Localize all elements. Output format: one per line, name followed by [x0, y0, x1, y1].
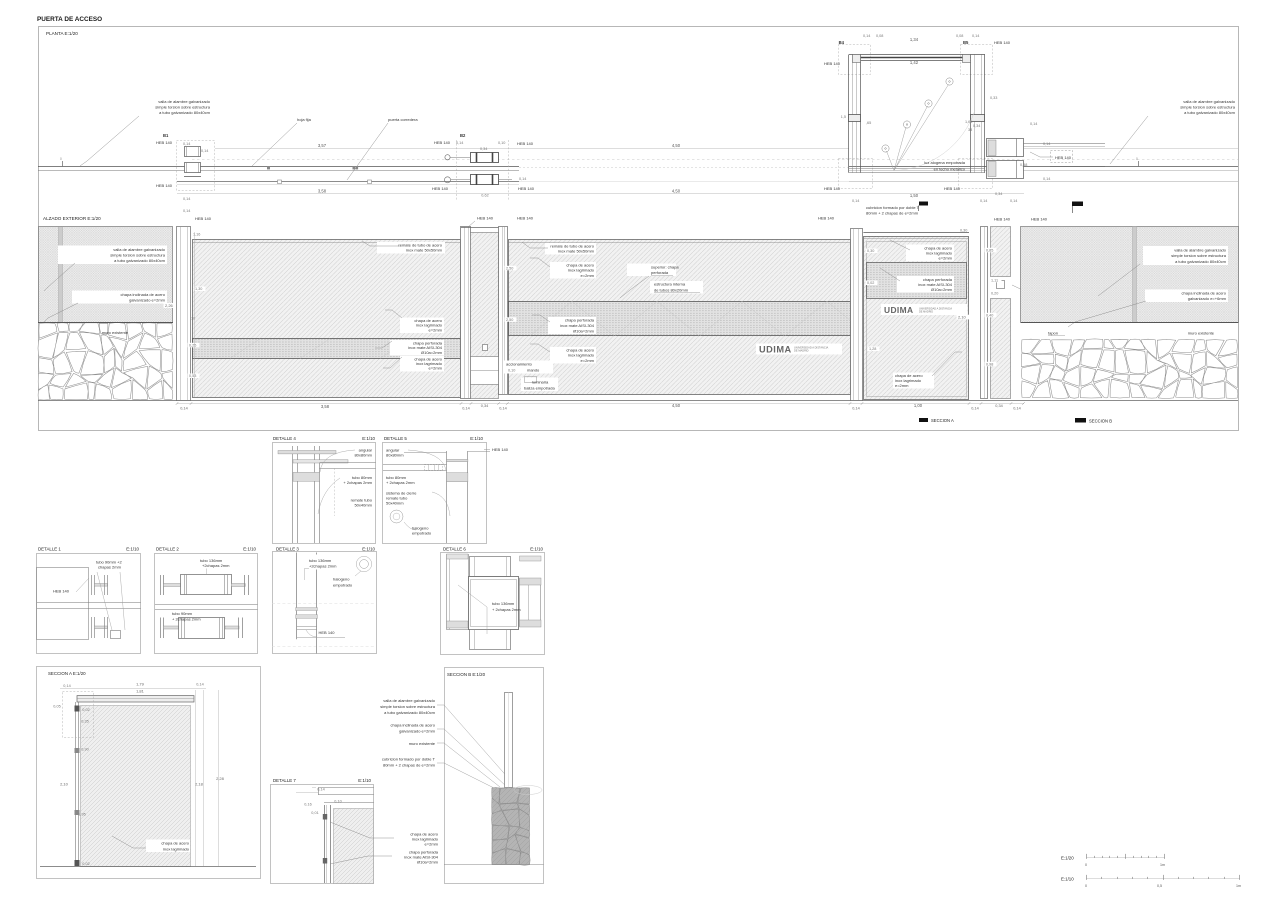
svg-text:B5: B5: [963, 40, 969, 45]
svg-text:0,40: 0,40: [986, 314, 993, 318]
svg-text:superior: chapa: superior: chapa: [651, 264, 679, 269]
svg-text:accionamiento: accionamiento: [506, 362, 533, 367]
svg-text:mando: mando: [527, 368, 540, 373]
svg-text:0,53: 0,53: [189, 374, 196, 378]
svg-text:80mm + 2 chapas de e=2mm: 80mm + 2 chapas de e=2mm: [383, 763, 436, 768]
svg-text:UDIMA: UDIMA: [884, 305, 913, 315]
svg-text:0,02: 0,02: [82, 708, 89, 712]
svg-text:HEB 140: HEB 140: [517, 141, 534, 146]
svg-text:B1: B1: [163, 133, 169, 138]
svg-text:4,50: 4,50: [672, 403, 681, 408]
svg-text:HEB 140: HEB 140: [517, 216, 534, 221]
svg-text:HEB 140: HEB 140: [994, 217, 1011, 222]
svg-text:1m: 1m: [1160, 863, 1165, 867]
svg-text:0,14: 0,14: [1043, 142, 1050, 146]
svg-text:HEB 140: HEB 140: [432, 186, 449, 191]
svg-text:1m: 1m: [1236, 884, 1241, 888]
svg-text:HEB 140: HEB 140: [477, 216, 494, 221]
svg-text:1,79: 1,79: [136, 682, 145, 687]
svg-text:0,14: 0,14: [1043, 177, 1050, 181]
svg-text:0,14: 0,14: [196, 683, 203, 687]
svg-text:ALZADO EXTERIOR E:1/20: ALZADO EXTERIOR E:1/20: [43, 216, 101, 221]
svg-text:HEB 140: HEB 140: [518, 186, 535, 191]
svg-text:tubo 136mm: tubo 136mm: [492, 601, 515, 606]
svg-text:a tubo galvanizado 80x40cm: a tubo galvanizado 80x40cm: [1184, 110, 1236, 115]
svg-text:UDIMA: UDIMA: [759, 345, 792, 355]
svg-text:SECCION A: SECCION A: [931, 418, 954, 423]
svg-text:1,5: 1,5: [841, 115, 846, 119]
svg-text:0: 0: [60, 157, 62, 161]
svg-text:0,10: 0,10: [508, 369, 515, 373]
svg-text:0,14: 0,14: [499, 407, 506, 411]
svg-text:38: 38: [968, 128, 972, 132]
svg-text:0,62: 0,62: [481, 194, 488, 198]
svg-text:HEB 140: HEB 140: [53, 589, 70, 594]
svg-text:estructura interna: estructura interna: [654, 282, 686, 287]
svg-text:empotrado: empotrado: [333, 583, 353, 588]
svg-text:valla de alambre galvanizado: valla de alambre galvanizado: [158, 99, 211, 104]
svg-text:0: 0: [1136, 157, 1138, 161]
svg-text:80x80mm: 80x80mm: [354, 453, 372, 458]
svg-text:muro existente: muro existente: [102, 330, 129, 335]
svg-text:0,14: 0,14: [456, 141, 463, 145]
svg-text:simple torsion sobre estructur: simple torsion sobre estructura: [155, 105, 210, 110]
svg-text:DETALLE 6: DETALLE 6: [443, 547, 466, 552]
svg-text:E:1/10: E:1/10: [362, 436, 375, 441]
svg-text:0,20: 0,20: [991, 292, 998, 296]
svg-text:+ 2chapas 2mm: + 2chapas 2mm: [343, 480, 372, 485]
svg-text:2,10: 2,10: [958, 314, 967, 319]
svg-text:0,58: 0,58: [1020, 163, 1027, 167]
svg-text:0,14: 0,14: [980, 199, 987, 203]
svg-text:chapa inclinada de acero: chapa inclinada de acero: [121, 292, 166, 297]
svg-text:0,34: 0,34: [481, 404, 488, 408]
svg-text:cubricion formado por doble T: cubricion formado por doble T: [866, 205, 920, 210]
svg-text:en techo metalico: en techo metalico: [934, 167, 966, 172]
svg-text:HEB 140: HEB 140: [1055, 155, 1072, 160]
svg-text:perforada: perforada: [651, 270, 669, 275]
svg-text:valla de alambre galvanizado: valla de alambre galvanizado: [113, 247, 166, 252]
svg-text:valla de alambre galvanizado: valla de alambre galvanizado: [1183, 99, 1236, 104]
svg-text:2,10: 2,10: [60, 782, 69, 787]
svg-text:0,08: 0,08: [876, 34, 883, 38]
svg-text:0,30: 0,30: [960, 229, 967, 233]
svg-text:e=2mm: e=2mm: [581, 273, 595, 278]
svg-text:1,00: 1,00: [914, 403, 923, 408]
svg-text:0,14: 0,14: [1013, 407, 1020, 411]
svg-text:0,25: 0,25: [189, 343, 196, 347]
svg-text:inox mate 50x50mm: inox mate 50x50mm: [406, 248, 443, 253]
svg-text:simple torsion sobre estructur: simple torsion sobre estructura: [380, 704, 435, 709]
svg-text:1,34: 1,34: [910, 37, 919, 42]
svg-text:3,58: 3,58: [321, 404, 330, 409]
svg-text:simple torsion sobre estructur: simple torsion sobre estructura: [1171, 253, 1226, 258]
svg-text:2,28: 2,28: [216, 776, 225, 781]
svg-text:HEB 140: HEB 140: [156, 183, 173, 188]
svg-text:4,50: 4,50: [672, 143, 681, 148]
svg-text:a tubo galvanizado 80x40cm: a tubo galvanizado 80x40cm: [159, 110, 211, 115]
svg-text:simple torsion sobre estructur: simple torsion sobre estructura: [110, 253, 165, 258]
svg-text:0,34: 0,34: [995, 192, 1002, 196]
svg-text:HEB 140: HEB 140: [319, 630, 336, 635]
svg-text:0,5: 0,5: [1157, 884, 1162, 888]
svg-text:Ø10a=2mm: Ø10a=2mm: [931, 287, 953, 292]
svg-text:4,50: 4,50: [672, 188, 681, 193]
svg-text:1,16: 1,16: [193, 232, 200, 236]
svg-text:0,14: 0,14: [201, 149, 208, 153]
svg-text:2,50: 2,50: [506, 318, 513, 322]
svg-text:+ 2chapas 2mm: + 2chapas 2mm: [492, 607, 521, 612]
svg-text:DETALLE 1: DETALLE 1: [38, 547, 61, 552]
svg-text:HEB 140: HEB 140: [818, 216, 835, 221]
svg-text:e=2mm: e=2mm: [581, 358, 595, 363]
svg-text:HEB 140: HEB 140: [492, 447, 509, 452]
svg-text:valla de alambre galvanizado: valla de alambre galvanizado: [1174, 248, 1227, 253]
svg-text:0,14: 0,14: [180, 407, 187, 411]
svg-text:e=2mm: e=2mm: [425, 842, 439, 847]
svg-text:B4: B4: [839, 40, 845, 45]
svg-text:E:1/10: E:1/10: [126, 547, 139, 552]
svg-text:HEB 140: HEB 140: [434, 140, 451, 145]
svg-text:HEB 140: HEB 140: [1031, 217, 1048, 222]
svg-text:inox mate AISI-304: inox mate AISI-304: [560, 323, 595, 328]
svg-text:0,33: 0,33: [990, 96, 997, 100]
svg-text:0: 0: [1085, 863, 1087, 867]
svg-text:chapa de acero: chapa de acero: [161, 841, 189, 846]
svg-text:0,14: 0,14: [317, 788, 324, 792]
svg-text:a tubo galvanizado 80x40cm: a tubo galvanizado 80x40cm: [1175, 259, 1227, 264]
svg-text:Ø10a=2mm: Ø10a=2mm: [417, 860, 439, 865]
svg-text:DETALLE 2: DETALLE 2: [156, 547, 179, 552]
svg-text:luminaria: luminaria: [532, 380, 549, 385]
svg-text:E:1/10: E:1/10: [530, 547, 543, 552]
svg-text:0,14: 0,14: [971, 407, 978, 411]
svg-text:0,14: 0,14: [183, 197, 190, 201]
svg-text:E:1/10: E:1/10: [470, 436, 483, 441]
svg-text:80x80mm: 80x80mm: [386, 453, 404, 458]
svg-text:simple torsion sobre estructur: simple torsion sobre estructura: [1180, 105, 1235, 110]
svg-text:empotrado: empotrado: [412, 531, 432, 536]
svg-text:0,34: 0,34: [480, 147, 487, 151]
svg-text:chapas 2mm: chapas 2mm: [98, 565, 122, 570]
svg-text:3,58: 3,58: [318, 188, 327, 193]
svg-text:E:1/10: E:1/10: [1061, 877, 1074, 882]
svg-text:luz alogena empotrada: luz alogena empotrada: [924, 160, 965, 165]
svg-text:,65: ,65: [866, 121, 871, 125]
svg-text:0: 0: [1085, 884, 1087, 888]
svg-text:3,57: 3,57: [318, 143, 327, 148]
svg-text:B2: B2: [460, 133, 466, 138]
svg-text:halogeno: halogeno: [333, 577, 350, 582]
svg-text:puerta corredera: puerta corredera: [388, 117, 418, 122]
svg-text:1,30: 1,30: [195, 287, 202, 291]
svg-text:hoja fija: hoja fija: [297, 117, 312, 122]
svg-text:inox lagrimado: inox lagrimado: [163, 847, 190, 852]
svg-text:valla de alambre galvanizado: valla de alambre galvanizado: [383, 698, 436, 703]
svg-text:2,26: 2,26: [165, 303, 174, 308]
svg-text:0,98: 0,98: [986, 363, 993, 367]
svg-text:e=2mm: e=2mm: [429, 327, 443, 332]
svg-text:0,14: 0,14: [63, 684, 70, 688]
svg-text:1,28: 1,28: [869, 347, 876, 351]
svg-text:50x40mm: 50x40mm: [386, 501, 404, 506]
svg-text:0,10: 0,10: [498, 141, 505, 145]
svg-text:HEB 140: HEB 140: [944, 186, 961, 191]
svg-text:0,14: 0,14: [519, 177, 526, 181]
svg-text:0,02: 0,02: [82, 862, 89, 866]
svg-text:SECCION B E:1/20: SECCION B E:1/20: [447, 672, 486, 677]
svg-text:0,10: 0,10: [334, 800, 341, 804]
svg-text:+2chapas 2mm: +2chapas 2mm: [309, 564, 337, 569]
svg-text:PUERTA DE ACCESO: PUERTA DE ACCESO: [37, 16, 102, 23]
svg-text:2,50: 2,50: [506, 266, 513, 270]
svg-text:E:1/20: E:1/20: [1061, 856, 1074, 861]
svg-text:2,18: 2,18: [195, 782, 204, 787]
svg-text:galvanizado e=2mm: galvanizado e=2mm: [129, 298, 166, 303]
svg-text:+ 2chapas 2mm: + 2chapas 2mm: [172, 617, 201, 622]
svg-text:tubo 90mm: tubo 90mm: [172, 611, 193, 616]
svg-text:0,85: 0,85: [986, 249, 993, 253]
svg-text:HEB 140: HEB 140: [824, 186, 841, 191]
svg-text:+ 2chapas 2mm: + 2chapas 2mm: [386, 480, 415, 485]
svg-text:0,35: 0,35: [81, 720, 88, 724]
svg-text:e=2mm: e=2mm: [895, 383, 909, 388]
svg-text:1,81: 1,81: [136, 689, 145, 694]
svg-text:0,14: 0,14: [1010, 199, 1017, 203]
svg-text:0,14: 0,14: [183, 209, 190, 213]
svg-text:muro existente: muro existente: [409, 741, 436, 746]
svg-text:Ø10a=2mm: Ø10a=2mm: [573, 328, 595, 333]
svg-text:50x40mm: 50x40mm: [354, 503, 372, 508]
svg-text:0,08: 0,08: [956, 34, 963, 38]
svg-text:HEB 140: HEB 140: [994, 40, 1011, 45]
svg-text:0,01: 0,01: [311, 811, 318, 815]
svg-text:0,14: 0,14: [852, 407, 859, 411]
svg-text:0,14: 0,14: [1030, 122, 1037, 126]
svg-text:Ø10a=2mm: Ø10a=2mm: [421, 350, 443, 355]
svg-text:0,05: 0,05: [53, 705, 60, 709]
svg-text:chapa inclinada de acero: chapa inclinada de acero: [1182, 291, 1227, 296]
svg-text:0,16: 0,16: [304, 803, 311, 807]
svg-text:chapa inclinada de acero: chapa inclinada de acero: [391, 723, 436, 728]
svg-text:galvanizado e=+6mm: galvanizado e=+6mm: [1188, 296, 1227, 301]
svg-text:HEB 140: HEB 140: [156, 140, 173, 145]
svg-text:chapa de acero: chapa de acero: [566, 262, 594, 267]
svg-text:0,14: 0,14: [462, 407, 469, 411]
svg-text:1,11: 1,11: [991, 279, 998, 283]
svg-text:PLANTA E:1/20: PLANTA E:1/20: [46, 31, 78, 36]
svg-text:+2chapas 2mm: +2chapas 2mm: [202, 563, 230, 568]
svg-text:E:1/10: E:1/10: [362, 547, 375, 552]
svg-text:1,95: 1,95: [78, 813, 85, 817]
svg-text:E:1/10: E:1/10: [358, 778, 371, 783]
svg-text:0,14: 0,14: [863, 34, 870, 38]
svg-text:HEB 140: HEB 140: [195, 216, 212, 221]
svg-text:SECCION A E:1/20: SECCION A E:1/20: [48, 671, 86, 676]
svg-text:0,14: 0,14: [183, 142, 190, 146]
svg-text:1,50: 1,50: [910, 193, 919, 198]
svg-text:0,30: 0,30: [867, 249, 874, 253]
svg-text:DETALLE 4: DETALLE 4: [273, 436, 296, 441]
svg-text:0,90: 0,90: [81, 748, 88, 752]
svg-text:de tubos 80x20mm: de tubos 80x20mm: [654, 287, 689, 292]
svg-text:galvanizado e=2mm: galvanizado e=2mm: [399, 729, 436, 734]
svg-text:baliza empotrada: baliza empotrada: [524, 385, 555, 390]
svg-text:0,14: 0,14: [852, 199, 859, 203]
svg-text:SECCION B: SECCION B: [1089, 419, 1112, 424]
svg-text:E:1/10: E:1/10: [243, 547, 256, 552]
svg-text:a tubo galvanizado 80x40cm: a tubo galvanizado 80x40cm: [114, 258, 166, 263]
svg-text:chapa perforada: chapa perforada: [565, 318, 595, 323]
svg-text:e=2mm: e=2mm: [429, 366, 443, 371]
svg-text:0,02: 0,02: [867, 281, 874, 285]
svg-text:80mm + 2 chapas de e=2mm: 80mm + 2 chapas de e=2mm: [866, 211, 919, 216]
svg-text:DE MADRID: DE MADRID: [919, 311, 933, 314]
svg-text:0,34: 0,34: [973, 124, 980, 128]
svg-text:a tubo galvanizado 80x40cm: a tubo galvanizado 80x40cm: [384, 710, 436, 715]
svg-text:DETALLE 5: DETALLE 5: [384, 436, 407, 441]
svg-text:1,65: 1,65: [965, 120, 972, 124]
svg-text:DE MADRID: DE MADRID: [794, 349, 809, 353]
svg-text:DETALLE 3: DETALLE 3: [276, 547, 299, 552]
svg-text:0,14: 0,14: [972, 34, 979, 38]
svg-text:muro existente: muro existente: [1188, 331, 1215, 336]
svg-text:inox mate 50x50mm: inox mate 50x50mm: [558, 249, 595, 254]
svg-text:tubo 136mm: tubo 136mm: [309, 558, 332, 563]
svg-text:DETALLE 7: DETALLE 7: [273, 778, 296, 783]
svg-text:HEB 140: HEB 140: [824, 61, 841, 66]
svg-text:0,34: 0,34: [995, 404, 1002, 408]
svg-text:e=2mm: e=2mm: [939, 256, 953, 261]
svg-text:cubricion formado por doble T: cubricion formado por doble T: [382, 757, 436, 762]
svg-text:tapon: tapon: [1048, 331, 1058, 336]
